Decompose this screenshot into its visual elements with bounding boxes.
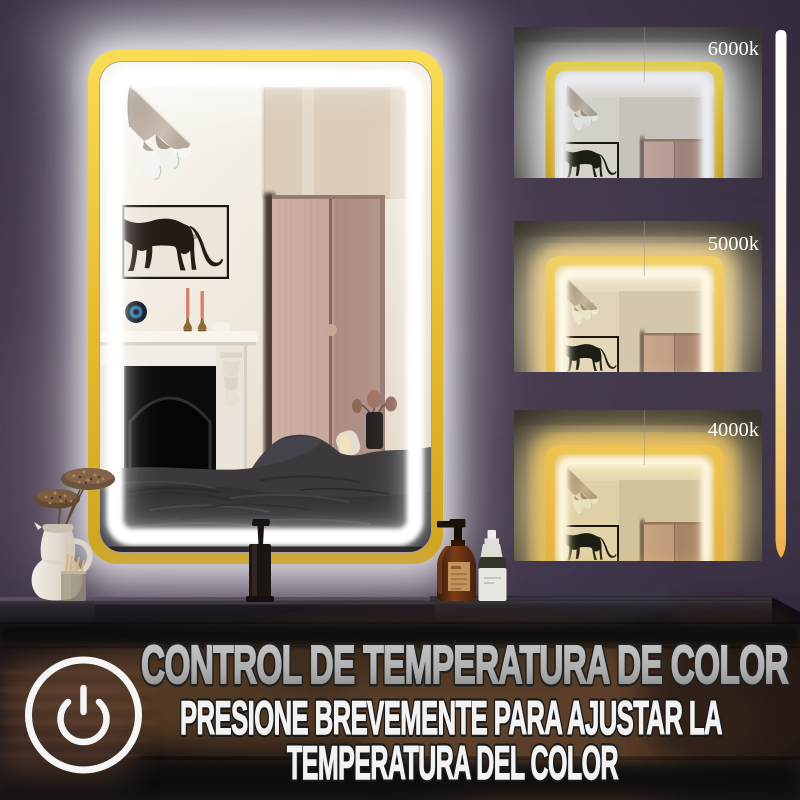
svg-text:CONTROL DE TEMPERATURA DE COLO: CONTROL DE TEMPERATURA DE COLOR (141, 636, 788, 695)
svg-text:4000k: 4000k (708, 419, 760, 441)
svg-text:6000k: 6000k (708, 38, 760, 60)
svg-text:5000k: 5000k (708, 233, 760, 255)
svg-text:TEMPERATURA DEL COLOR: TEMPERATURA DEL COLOR (287, 737, 618, 790)
